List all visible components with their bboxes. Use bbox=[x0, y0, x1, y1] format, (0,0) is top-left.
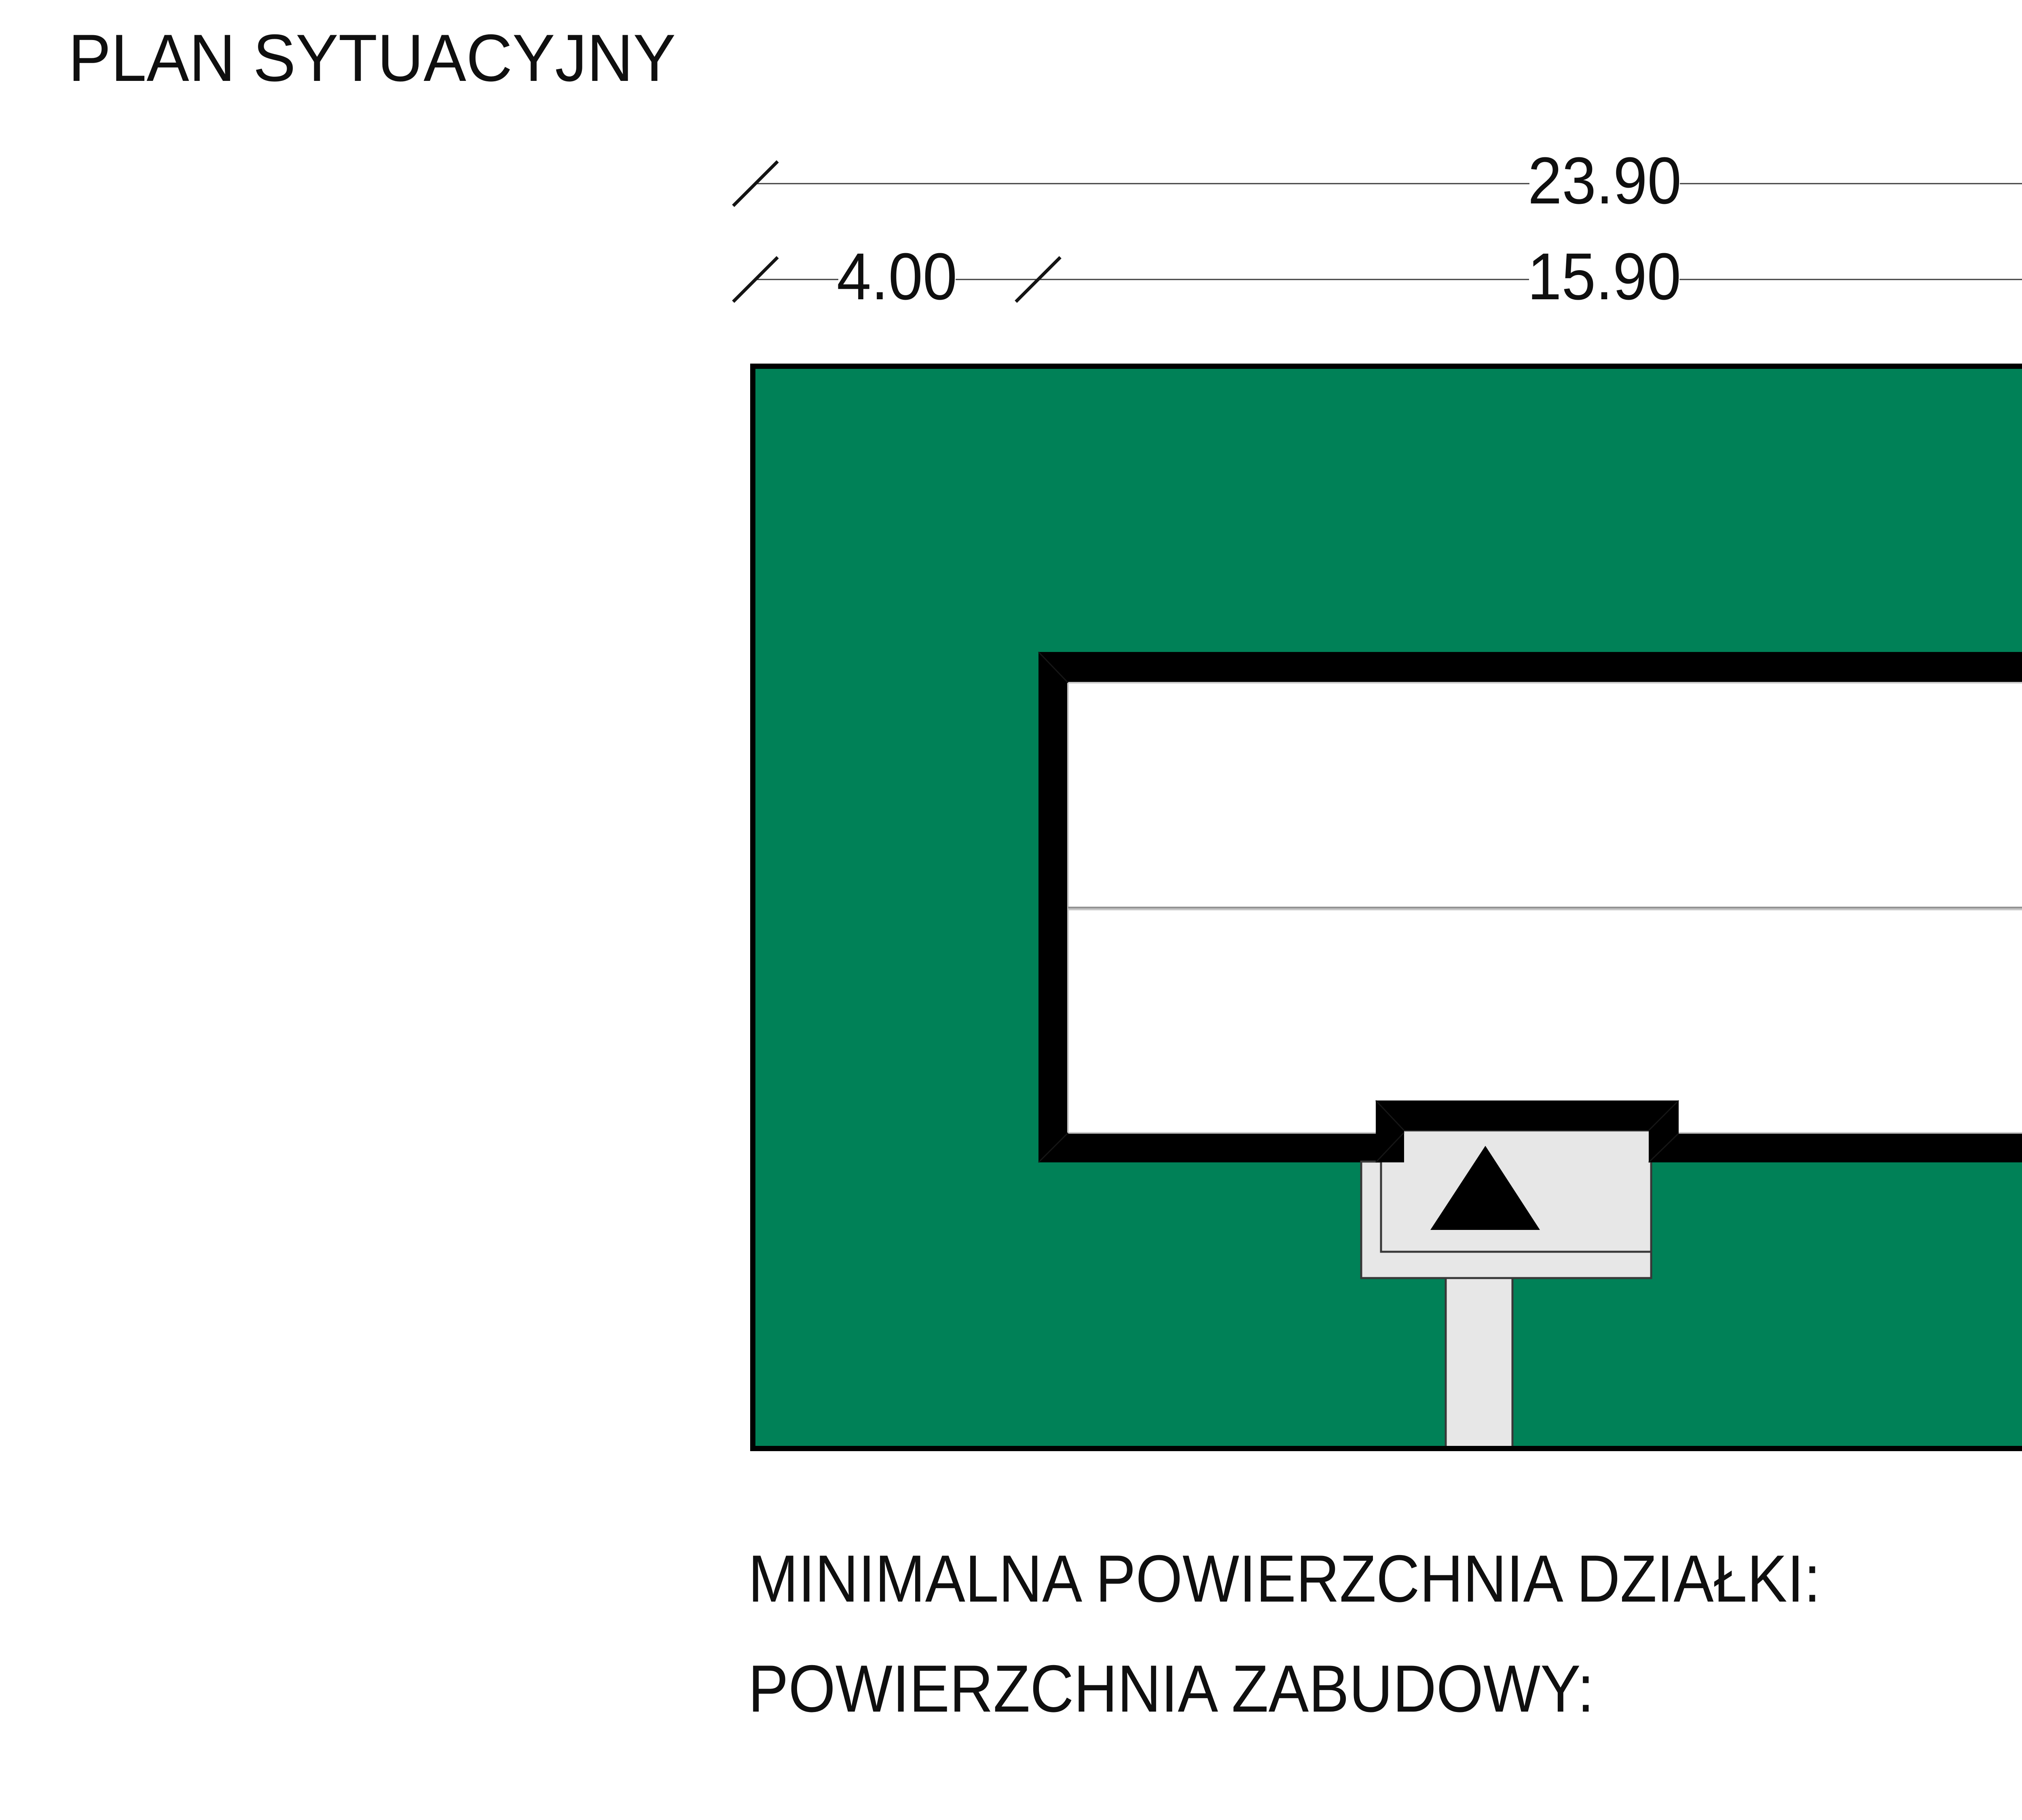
svg-text:MINIMALNA POWIERZCHNIA DZIAŁKI: MINIMALNA POWIERZCHNIA DZIAŁKI: bbox=[748, 1541, 1821, 1616]
svg-text:POWIERZCHNIA ZABUDOWY:: POWIERZCHNIA ZABUDOWY: bbox=[748, 1651, 1594, 1726]
svg-text:PLAN SYTUACYJNY: PLAN SYTUACYJNY bbox=[68, 21, 676, 95]
svg-text:15.90: 15.90 bbox=[1527, 239, 1681, 313]
svg-text:23.90: 23.90 bbox=[1528, 144, 1681, 218]
svg-text:4.00: 4.00 bbox=[837, 239, 957, 313]
